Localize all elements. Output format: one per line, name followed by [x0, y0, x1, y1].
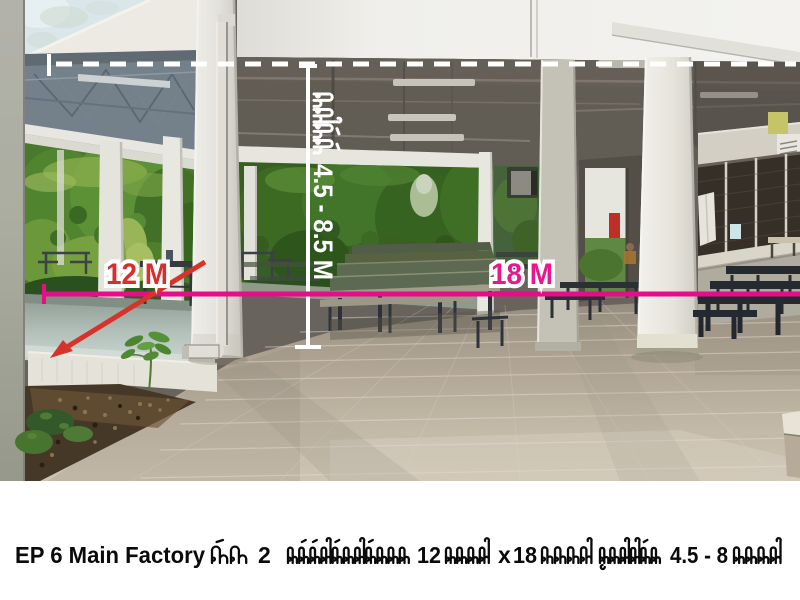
svg-text:x: x [498, 542, 511, 568]
svg-text:18 M: 18 M [491, 258, 553, 291]
svg-text:12: 12 [417, 542, 441, 568]
svg-text:4.5 - 8.5 M: 4.5 - 8.5 M [308, 164, 338, 280]
svg-text:4.5 - 8: 4.5 - 8 [670, 542, 728, 568]
svg-text:2: 2 [258, 542, 271, 568]
svg-text:18: 18 [513, 542, 537, 568]
svg-text:EP 6 Main Factory: EP 6 Main Factory [15, 542, 205, 568]
svg-text:12 M: 12 M [106, 258, 168, 291]
